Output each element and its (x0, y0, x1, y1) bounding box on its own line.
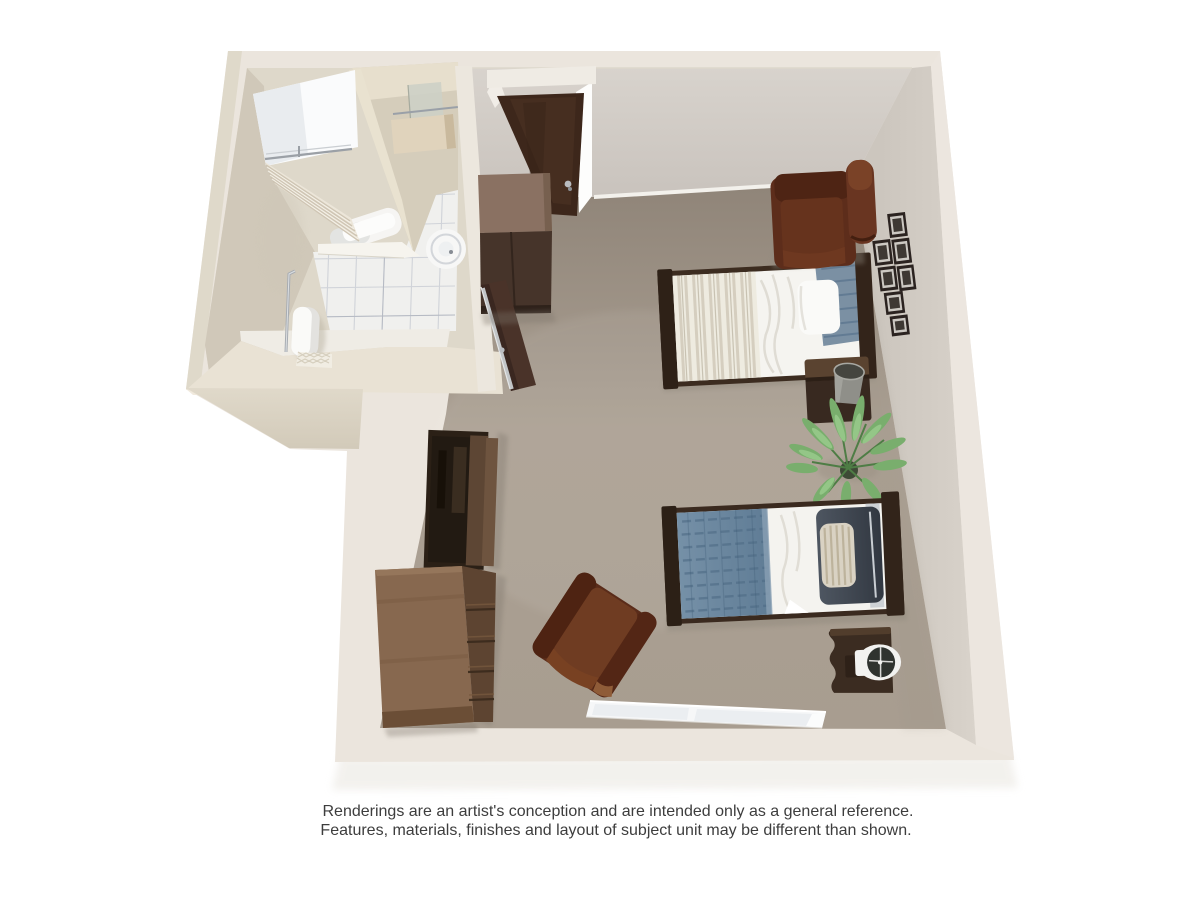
svg-text:Features, materials, finishes: Features, materials, finishes and layout… (320, 822, 911, 839)
svg-text:Renderings are an artist's con: Renderings are an artist's conception an… (323, 803, 914, 820)
